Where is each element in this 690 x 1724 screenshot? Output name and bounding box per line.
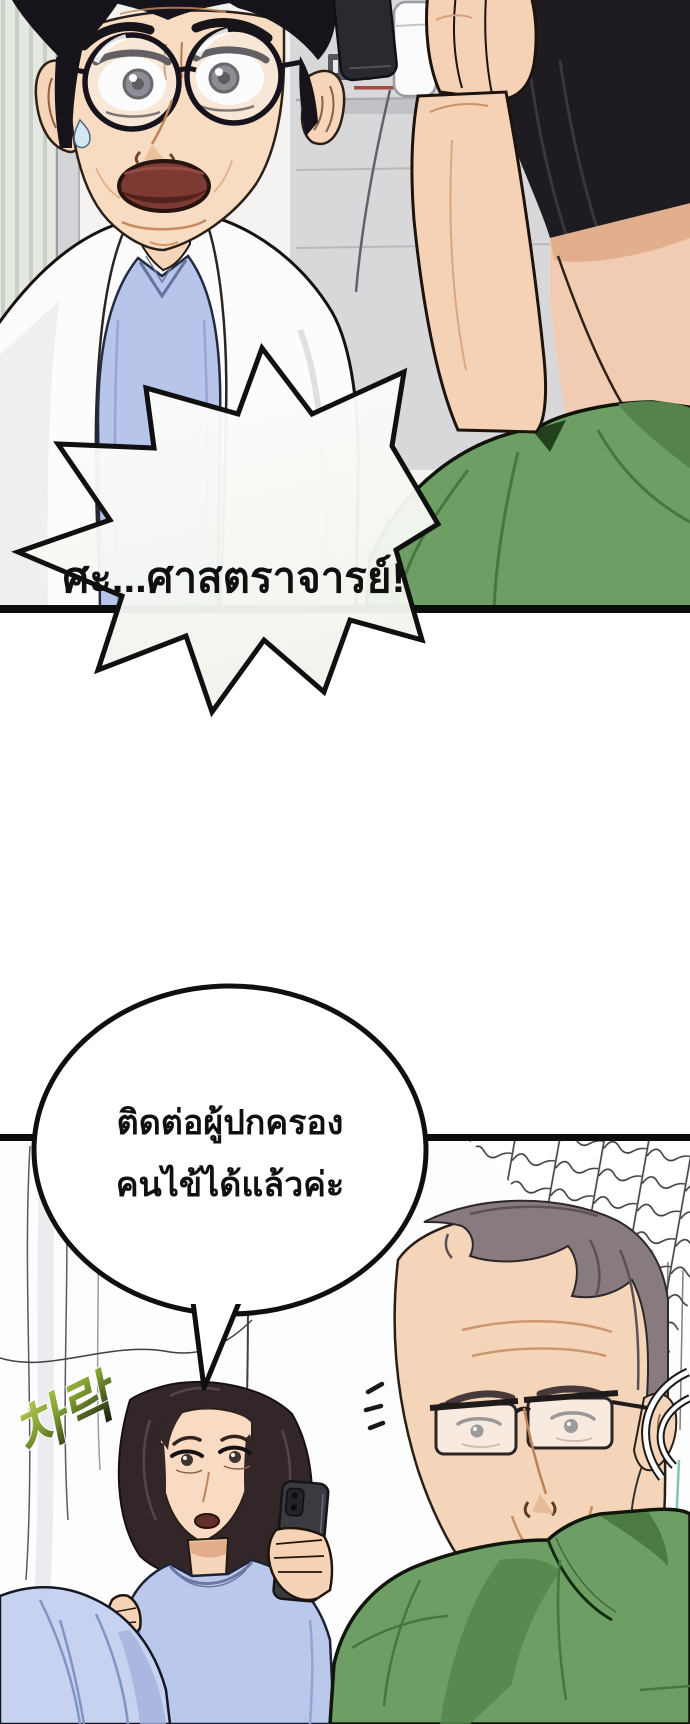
- woman-mouth: [195, 1514, 219, 1528]
- comic-art: 2: [0, 0, 690, 1724]
- phone-at-ear: [333, 0, 398, 81]
- ellipse-bubble-line2: คนไข้ได้แล้วค่ะ: [116, 1164, 344, 1204]
- phone-camera-module: [285, 1488, 304, 1516]
- ellipse-bubble-line1: ติดต่อผู้ปกครอง: [117, 1104, 344, 1144]
- green-person-hand: [427, 0, 537, 100]
- sign-red-stripe: [354, 86, 398, 90]
- ellipse-bubble-shape: [34, 986, 426, 1314]
- comic-page: 2: [0, 0, 690, 1724]
- burst-bubble-text: ศะ...ศาสตราจารย์!: [63, 554, 406, 601]
